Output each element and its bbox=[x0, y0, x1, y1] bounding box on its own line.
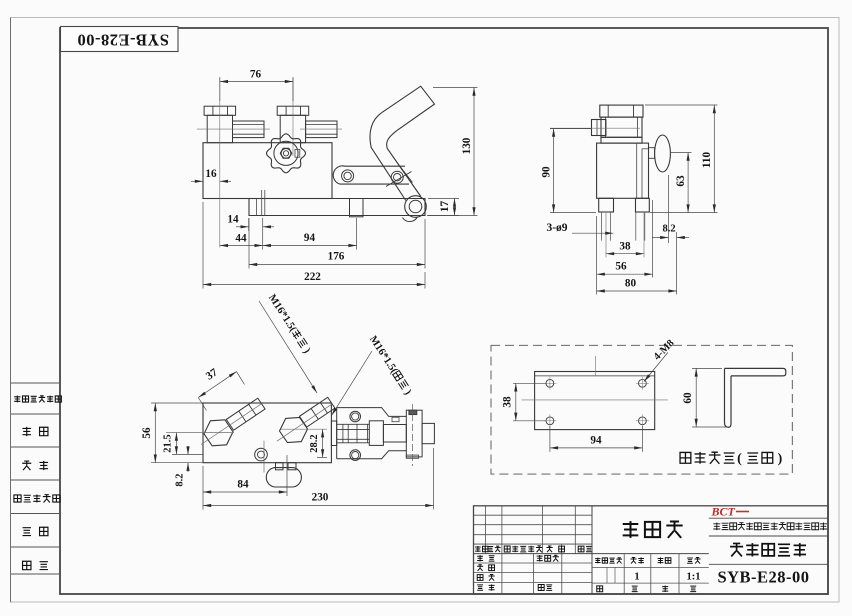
svg-text:1:1: 1:1 bbox=[687, 572, 701, 583]
svg-text:3-ø9: 3-ø9 bbox=[546, 222, 567, 234]
svg-text:17: 17 bbox=[439, 201, 451, 213]
svg-text:28.2: 28.2 bbox=[309, 434, 320, 452]
svg-text:94: 94 bbox=[590, 435, 602, 447]
svg-text:14: 14 bbox=[227, 214, 239, 226]
svg-text:176: 176 bbox=[328, 251, 345, 263]
svg-text:84: 84 bbox=[237, 479, 249, 491]
svg-text:56: 56 bbox=[615, 261, 627, 273]
svg-text:(: ( bbox=[737, 451, 742, 466]
svg-text:94: 94 bbox=[304, 232, 316, 244]
svg-text:56: 56 bbox=[141, 427, 153, 439]
svg-text:8.2: 8.2 bbox=[662, 224, 675, 235]
svg-text:38: 38 bbox=[502, 396, 514, 408]
svg-text:130: 130 bbox=[461, 137, 473, 154]
svg-text:76: 76 bbox=[250, 69, 262, 81]
svg-text:90: 90 bbox=[541, 166, 553, 178]
svg-text:16: 16 bbox=[205, 168, 217, 180]
svg-text:BCT: BCT bbox=[711, 505, 736, 519]
svg-text:222: 222 bbox=[304, 271, 321, 283]
svg-text:): ) bbox=[778, 451, 783, 466]
svg-text:110: 110 bbox=[701, 152, 713, 169]
svg-text:44: 44 bbox=[235, 233, 247, 245]
svg-text:8.2: 8.2 bbox=[175, 473, 186, 486]
svg-text:38: 38 bbox=[619, 241, 631, 253]
svg-text:60: 60 bbox=[682, 392, 694, 404]
svg-text:1: 1 bbox=[634, 572, 639, 583]
svg-text:21.5: 21.5 bbox=[163, 434, 174, 452]
svg-text:80: 80 bbox=[625, 278, 637, 290]
svg-text:63: 63 bbox=[675, 175, 687, 187]
svg-text:230: 230 bbox=[312, 492, 329, 504]
svg-text:SYB-E28-00: SYB-E28-00 bbox=[77, 31, 169, 50]
svg-text:SYB-E28-00: SYB-E28-00 bbox=[717, 568, 809, 587]
